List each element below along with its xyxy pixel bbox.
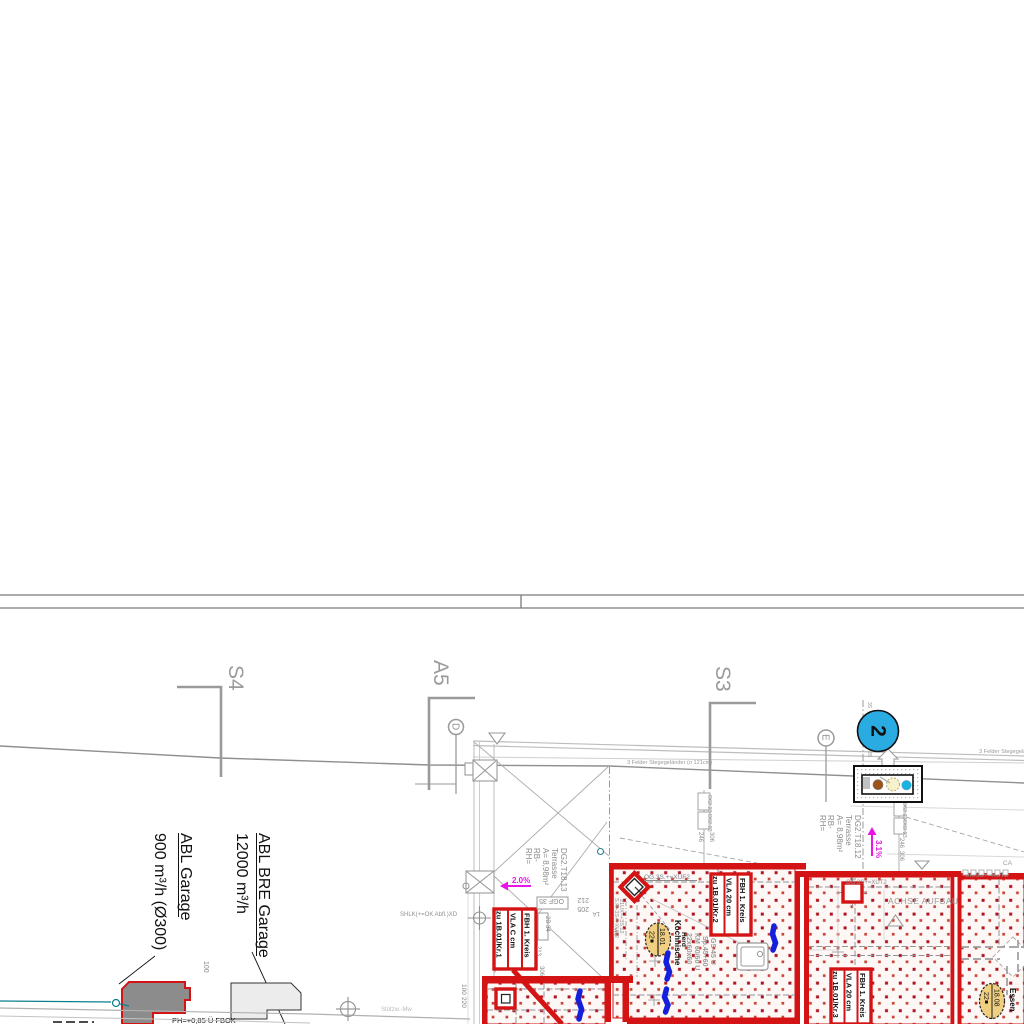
svg-text:A= 8,98m²: A= 8,98m² — [835, 815, 844, 852]
svg-text:FBH 1. Kreis: FBH 1. Kreis — [523, 913, 532, 958]
svg-text:100: 100 — [460, 984, 467, 995]
svg-text:DG2.T18.13: DG2.T18.13 — [559, 848, 568, 892]
svg-text:246: 246 — [697, 832, 703, 843]
svg-text:306: 306 — [898, 851, 904, 862]
svg-text:ABL BRE Garage: ABL BRE Garage — [255, 833, 272, 958]
svg-text:VLA 20 cm: VLA 20 cm — [845, 973, 854, 1011]
svg-text:306: 306 — [708, 832, 714, 843]
svg-text:220: 220 — [460, 997, 467, 1008]
svg-text:2.0%: 2.0% — [512, 876, 530, 885]
svg-text:S3: S3 — [711, 666, 734, 692]
svg-text:zu 1B.01/Kr.1: zu 1B.01/Kr.1 — [495, 911, 504, 958]
svg-text:S4: S4 — [224, 665, 247, 691]
svg-text:DG2.T18.12: DG2.T18.12 — [853, 815, 862, 859]
svg-text:212: 212 — [577, 896, 589, 903]
svg-text:21UX=+3S.12: 21UX=+3S.12 — [618, 899, 624, 934]
svg-text:zu 1B.01/Kr.3: zu 1B.01/Kr.3 — [831, 971, 840, 1018]
svg-text:OGF 35: OGF 35 — [539, 897, 564, 904]
svg-text:OG.3S+=XUT2: OG.3S+=XUT2 — [846, 880, 887, 886]
svg-text:315: 315 — [611, 927, 617, 936]
svg-text:22: 22 — [982, 992, 989, 1000]
svg-text:3 Felder Stegegeländer (o 121c: 3 Felder Stegegeländer (o 121cm) — [627, 760, 712, 766]
svg-text:CA: CA — [1003, 860, 1013, 867]
svg-text:A= 8,98m²: A= 8,98m² — [541, 848, 550, 885]
svg-text:SHLK(+=OK Abfl.)XD: SHLK(+=OK Abfl.)XD — [400, 912, 458, 918]
svg-text:Terrasse: Terrasse — [550, 848, 559, 879]
svg-text:2: 2 — [867, 725, 890, 737]
svg-text:RH=: RH= — [818, 815, 827, 832]
svg-text:E: E — [820, 734, 831, 741]
svg-text:A5: A5 — [429, 660, 452, 686]
svg-text:22: 22 — [648, 931, 655, 939]
svg-text:900 m³/h (Ø300): 900 m³/h (Ø300) — [151, 833, 168, 950]
svg-text:ABL Garage: ABL Garage — [177, 833, 194, 921]
svg-text:12000 m³/h: 12000 m³/h — [233, 833, 250, 914]
svg-text:205: 205 — [577, 905, 589, 912]
svg-text:3.1%: 3.1% — [874, 840, 883, 858]
svg-text:3 Felder Stegegeländer (o 121c: 3 Felder Stegegeländer (o 121cm) — [979, 749, 1024, 755]
svg-text:2B 34: 2B 34 — [544, 916, 550, 932]
svg-text:18.01: 18.01 — [658, 928, 665, 946]
svg-text:18.08: 18.08 — [993, 989, 1000, 1007]
svg-text:100: 100 — [202, 961, 209, 973]
svg-text:OG.3S.+=XUF2: OG.3S.+=XUF2 — [644, 874, 690, 881]
svg-text:RH=: RH= — [524, 848, 533, 865]
svg-text:D: D — [450, 723, 461, 730]
svg-text:213: 213 — [535, 946, 541, 957]
svg-text:KM 60/60 U: KM 60/60 U — [693, 933, 700, 970]
svg-text:FBH 1. Kreis: FBH 1. Kreis — [738, 878, 747, 923]
svg-text:3S: 3S — [866, 751, 872, 758]
svg-text:D62.23: D62.23 — [901, 802, 907, 820]
svg-text:306: 306 — [538, 966, 544, 977]
svg-text:246: 246 — [898, 838, 904, 849]
svg-text:Terrasse: Terrasse — [844, 815, 853, 846]
svg-text:ACHSE AUFBAU: ACHSE AUFBAU — [888, 896, 958, 906]
svg-text:D62.23: D62.23 — [706, 795, 712, 813]
svg-text:Sp.45+60: Sp.45+60 — [701, 936, 708, 967]
svg-text:Herd: Herd — [680, 932, 687, 947]
svg-text:D62.23: D62.23 — [901, 820, 907, 838]
svg-text:1A: 1A — [593, 910, 600, 916]
svg-text:D62.23: D62.23 — [706, 814, 712, 832]
svg-text:Stützw.-Mw: Stützw.-Mw — [381, 1007, 412, 1013]
svg-text:VLA C cm: VLA C cm — [509, 913, 518, 948]
svg-text:GS 45 U: GS 45 U — [709, 938, 716, 965]
svg-text:Essen: Essen — [1008, 988, 1017, 1012]
svg-text:VLA 20 cm: VLA 20 cm — [725, 878, 734, 916]
svg-text:3S: 3S — [866, 702, 872, 709]
svg-text:FBH 1. Kreis: FBH 1. Kreis — [858, 973, 867, 1018]
svg-text:zu 1B.01/Kr.2: zu 1B.01/Kr.2 — [711, 876, 720, 923]
